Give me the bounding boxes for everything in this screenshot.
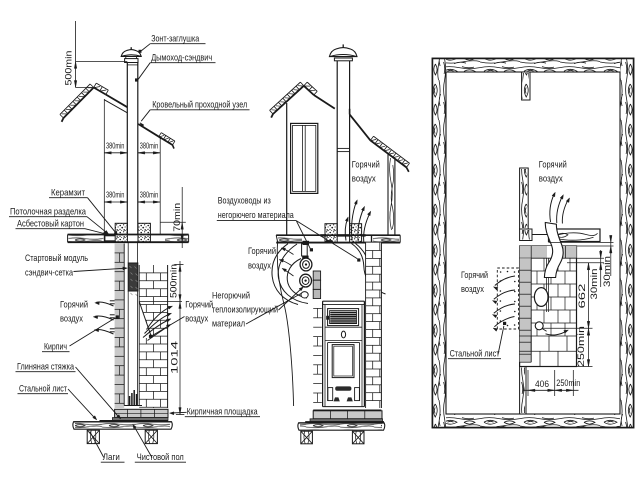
svg-text:380min: 380min <box>106 140 125 150</box>
svg-text:30min: 30min <box>602 256 612 287</box>
svg-text:406: 406 <box>535 379 549 389</box>
svg-text:воздух: воздух <box>60 314 83 325</box>
svg-text:Горячий: Горячий <box>461 270 488 281</box>
svg-text:380min: 380min <box>106 190 125 200</box>
svg-text:Чистовой пол: Чистовой пол <box>137 452 184 463</box>
svg-text:Горячий: Горячий <box>185 300 213 311</box>
svg-text:500min: 500min <box>168 264 178 298</box>
svg-text:воздух: воздух <box>539 174 563 185</box>
svg-text:Кирпичная площадка: Кирпичная площадка <box>187 407 259 418</box>
svg-text:Негорючий: Негорючий <box>212 291 250 302</box>
svg-text:Зонт-заглушка: Зонт-заглушка <box>151 34 200 45</box>
svg-text:30min: 30min <box>589 268 599 299</box>
svg-text:Стальной лист: Стальной лист <box>19 384 67 395</box>
svg-text:Дымоход-сэндвич: Дымоход-сэндвич <box>151 53 212 64</box>
svg-text:Стальной лист: Стальной лист <box>450 349 500 360</box>
svg-text:Горячий: Горячий <box>60 300 88 311</box>
svg-text:500min: 500min <box>63 51 73 86</box>
svg-text:Керамзит: Керамзит <box>51 188 86 199</box>
svg-text:250min: 250min <box>576 326 586 367</box>
svg-text:70min: 70min <box>172 203 182 232</box>
svg-text:воздух: воздух <box>352 174 376 185</box>
svg-text:1014: 1014 <box>169 341 179 374</box>
svg-text:сэндвич-сетка: сэндвич-сетка <box>25 268 74 279</box>
svg-text:Асбестовый картон: Асбестовый картон <box>17 219 84 230</box>
svg-text:Лаги: Лаги <box>103 452 120 463</box>
svg-text:теплоизолирующий: теплоизолирующий <box>212 305 278 316</box>
svg-text:Горячий: Горячий <box>539 160 567 171</box>
svg-text:воздух: воздух <box>248 261 271 272</box>
svg-text:Кирпич: Кирпич <box>44 342 67 353</box>
svg-text:Горячий: Горячий <box>352 160 380 171</box>
svg-text:воздух: воздух <box>461 284 484 295</box>
svg-text:материал: материал <box>212 319 245 330</box>
svg-text:662: 662 <box>577 283 587 308</box>
svg-text:250min: 250min <box>556 378 580 388</box>
svg-text:380min: 380min <box>140 140 159 150</box>
svg-text:негорючего материала: негорючего материала <box>218 210 295 221</box>
svg-text:Стартовый модуль: Стартовый модуль <box>25 253 88 264</box>
svg-text:воздух: воздух <box>185 314 208 325</box>
svg-text:Глиняная стяжка: Глиняная стяжка <box>17 362 75 373</box>
svg-text:380min: 380min <box>140 190 159 200</box>
svg-text:Потолочная разделка: Потолочная разделка <box>10 207 87 218</box>
svg-text:Горячий: Горячий <box>248 246 276 257</box>
svg-text:Воздуховоды из: Воздуховоды из <box>218 196 271 207</box>
svg-text:Кровельный проходной узел: Кровельный проходной узел <box>152 100 247 111</box>
